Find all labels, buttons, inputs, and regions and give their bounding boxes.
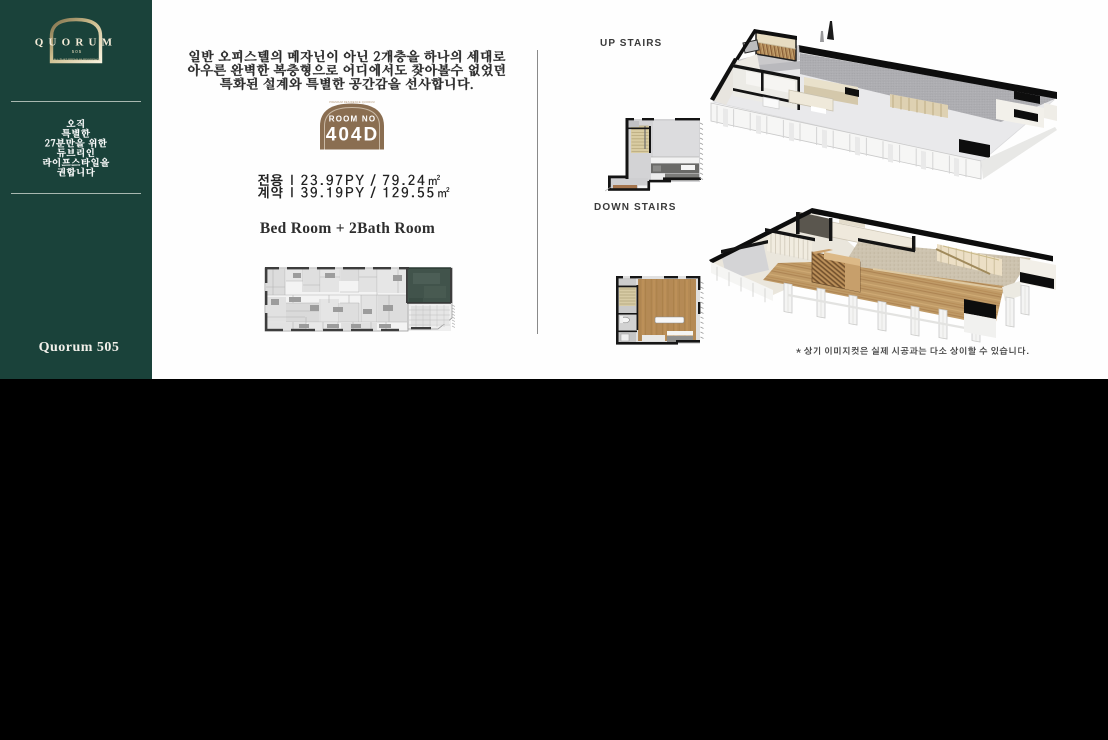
svg-text:QUORUM: QUORUM — [35, 37, 118, 49]
svg-text:404D: 404D — [326, 125, 379, 146]
svg-text:505: 505 — [72, 49, 83, 54]
svg-text:ROOM NO: ROOM NO — [329, 115, 377, 124]
svg-text:ALL THAT PREMIUM RESIDENCE: ALL THAT PREMIUM RESIDENCE — [54, 58, 101, 62]
